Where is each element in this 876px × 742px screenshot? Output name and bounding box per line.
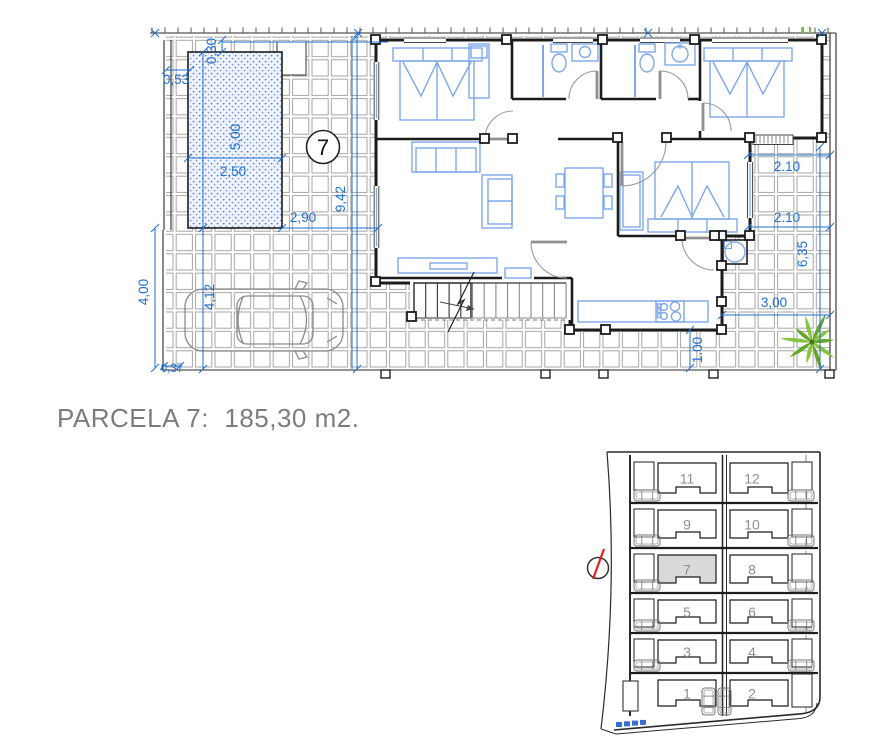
dim-driveway-depth: 4,00 [136,279,151,305]
garage-left [634,509,654,537]
site-parcel-label-11: 11 [680,471,695,487]
dim-plot-depth: 9,42 [333,186,348,212]
page: 0,30 0,53 5,00 2,50 2,90 9,42 4,00 4,12 … [0,0,876,742]
dim-pool-length: 5,00 [228,124,243,150]
garage-left [634,639,654,667]
garage-right [792,599,812,627]
site-extras [616,720,646,727]
garage-right [792,462,812,490]
garage-left [623,681,638,711]
site-house-4 [730,640,788,663]
window-bedroom2-terrace [753,135,793,145]
site-plan: 111291078563412 [580,445,876,742]
window-top-bedroom2 [712,37,788,43]
dim-pool-width: 2,50 [220,164,246,179]
floor-plan-drawing: 0,30 0,53 5,00 2,50 2,90 9,42 4,00 4,12 … [0,0,876,398]
garage-right [792,674,812,707]
site-row-5-6: 56 [630,599,818,633]
garage-left [634,554,654,582]
site-blue-marker [632,721,638,726]
dim-terrace-right-upper: 2.10 [774,159,800,174]
site-parcel-label-6: 6 [748,604,756,620]
dim-edge-offset: 0,37 [161,363,183,375]
dim-terrace-back-width: 3,00 [761,295,787,310]
site-row-11-12: 1112 [630,462,818,503]
site-parcel-label-8: 8 [748,562,756,578]
site-parcel-label-12: 12 [744,471,760,487]
window-left-living [373,186,379,248]
site-rows: 111291078563412 [623,462,818,715]
garage-right [792,639,812,667]
site-row-9-10: 910 [630,509,818,548]
boundary-ticks [152,28,828,34]
site-row-1-2: 12 [623,674,812,715]
site-parcel-label-9: 9 [683,517,691,533]
stairwell-area [410,280,572,320]
dim-parking-length: 4,12 [202,284,217,310]
site-blue-marker [624,721,630,726]
parcel-title: PARCELA 7: 185,30 m2. [57,403,359,434]
site-parcel-label-2: 2 [748,686,756,702]
site-parcel-label-7: 7 [683,562,691,578]
site-house-8 [730,555,788,583]
window-top-bath1 [553,37,593,43]
window-top-bedroom1 [404,37,446,43]
parcel-number: 7 [317,135,329,160]
garage-left [634,462,654,490]
site-row-3-4: 34 [630,639,818,673]
garage-right [792,509,812,537]
dim-terrace-right-depth: 6,35 [795,241,810,267]
site-parcel-label-10: 10 [744,517,760,533]
garage-right [792,554,812,582]
dim-walkway-width: 1.00 [690,337,705,363]
dim-terrace-left-width: 2,90 [290,210,316,225]
site-parcel-label-5: 5 [683,604,691,620]
site-parcel-label-1: 1 [683,686,691,702]
site-blue-marker [640,720,646,725]
site-row-7-8: 78 [630,554,818,593]
parcel-number-bubble: 7 [307,131,340,164]
window-bedroom3-east [747,162,754,218]
site-parcel-label-4: 4 [748,644,756,660]
site-house-2 [730,680,788,706]
site-house-6 [730,600,788,623]
fence-posts [381,370,834,378]
site-blue-marker [616,722,622,727]
site-parcel-label-3: 3 [683,644,691,660]
dim-pool-top-offset: 0,30 [204,38,219,64]
garage-left [634,599,654,627]
window-left-bedroom [373,62,379,120]
compass [588,549,609,579]
dim-pool-left-offset: 0,53 [163,72,189,87]
dim-terrace-right-lower: 2.10 [774,210,800,225]
